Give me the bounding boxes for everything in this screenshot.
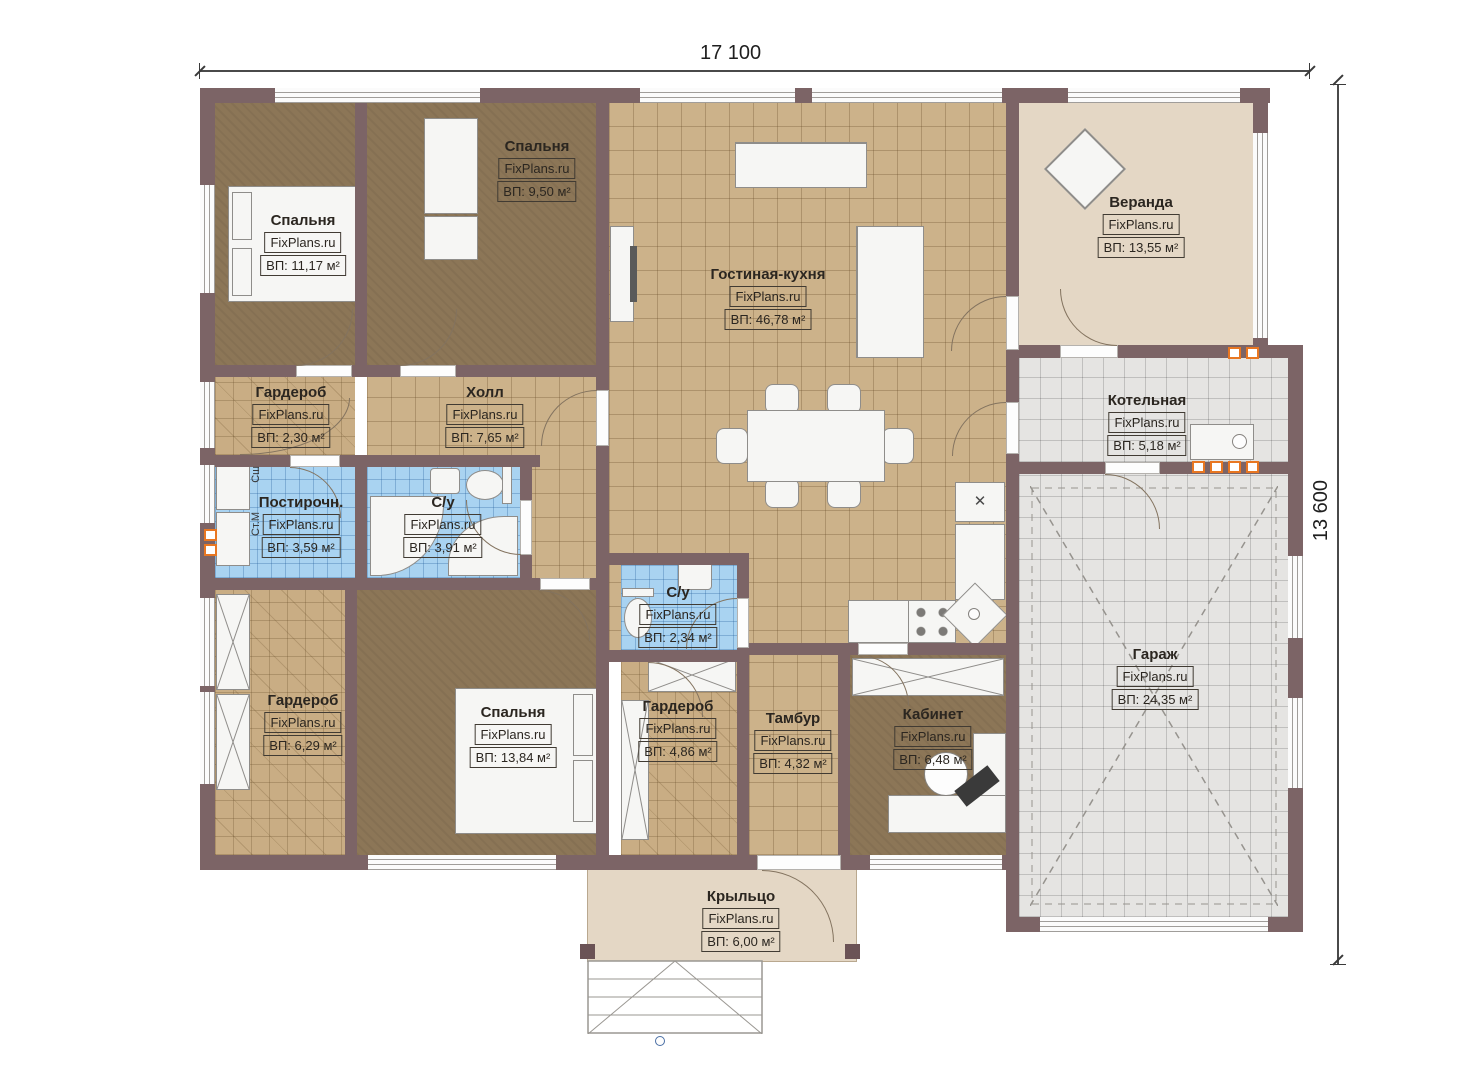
- pillow: [573, 760, 593, 822]
- brand-box: FixPlans.ru: [729, 286, 806, 307]
- room-name: С/у: [666, 584, 689, 601]
- area-box: ВП: 4,32 м²: [753, 753, 832, 774]
- brand-box: FixPlans.ru: [446, 404, 523, 425]
- dim-width-label: 17 100: [700, 42, 761, 65]
- label-bedroom-2: Спальня FixPlans.ru ВП: 9,50 м²: [497, 138, 576, 202]
- toilet-tank: [502, 466, 512, 504]
- area-box: ВП: 11,17 м²: [260, 255, 346, 276]
- wall: [609, 650, 749, 662]
- wardrobe-cabinet: [216, 594, 250, 690]
- kitchen-counter: [848, 600, 910, 643]
- brand-box: FixPlans.ru: [639, 718, 716, 739]
- label-bedroom-3: Спальня FixPlans.ru ВП: 13,84 м²: [470, 704, 557, 768]
- room-name: Гардероб: [256, 384, 327, 401]
- vent-marker: [1228, 347, 1241, 359]
- room-name: Крыльцо: [707, 888, 775, 905]
- door-leaf: [1006, 402, 1019, 454]
- door-leaf: [520, 500, 532, 555]
- porch-post: [845, 944, 860, 959]
- brand-box: FixPlans.ru: [894, 726, 971, 747]
- label-office: Кабинет FixPlans.ru ВП: 6,48 м²: [893, 706, 972, 770]
- sink-drain: [968, 608, 980, 620]
- vent-marker: [1210, 461, 1223, 473]
- window: [368, 855, 556, 870]
- pillow: [232, 248, 252, 296]
- label-wardrobe-2: Гардероб FixPlans.ru ВП: 6,29 м²: [263, 692, 342, 756]
- washing-machine: [216, 512, 250, 566]
- area-box: ВП: 24,35 м²: [1112, 689, 1199, 710]
- wardrobe-cabinet: [216, 694, 250, 790]
- brand-box: FixPlans.ru: [404, 514, 481, 535]
- dim-width-line: [200, 70, 1310, 72]
- area-box: ВП: 4,86 м²: [638, 741, 717, 762]
- room-name: Веранда: [1109, 194, 1173, 211]
- brand-box: FixPlans.ru: [264, 232, 341, 253]
- brand-box: FixPlans.ru: [754, 730, 831, 751]
- vent-marker: [1192, 461, 1205, 473]
- pillow: [232, 192, 252, 240]
- window: [812, 88, 1002, 103]
- door-leaf: [596, 390, 609, 446]
- window: [275, 88, 480, 103]
- wall: [609, 553, 749, 565]
- room-name: Спальня: [505, 138, 570, 155]
- brand-box: FixPlans.ru: [474, 724, 551, 745]
- area-box: ВП: 13,84 м²: [470, 747, 557, 768]
- room-name: Гостиная-кухня: [711, 266, 826, 283]
- room-name: Гардероб: [268, 692, 339, 709]
- room-name: Гараж: [1133, 646, 1178, 663]
- closet: [424, 216, 478, 260]
- area-box: ВП: 6,48 м²: [893, 749, 972, 770]
- door-leaf: [1006, 296, 1019, 350]
- boiler-gauge: [1232, 434, 1247, 449]
- floor-plan: 17 100 13 600 ✕: [0, 0, 1474, 1080]
- desk: [888, 795, 1006, 833]
- window: [640, 88, 795, 103]
- window: [1288, 556, 1303, 638]
- vent-marker: [1246, 461, 1259, 473]
- door-leaf: [290, 455, 340, 467]
- label-laundry: Постирочн. FixPlans.ru ВП: 3,59 м²: [259, 494, 344, 558]
- room-name: Холл: [466, 384, 504, 401]
- brand-box: FixPlans.ru: [252, 404, 329, 425]
- porch-post: [580, 944, 595, 959]
- wall: [1006, 88, 1019, 932]
- wall: [345, 590, 357, 855]
- sofa: [735, 142, 867, 188]
- window: [200, 598, 215, 686]
- brand-box: FixPlans.ru: [262, 514, 339, 535]
- label-bedroom-1: Спальня FixPlans.ru ВП: 11,17 м²: [260, 212, 346, 276]
- wall: [596, 103, 609, 855]
- room-name: Спальня: [271, 212, 336, 229]
- brand-box: FixPlans.ru: [498, 158, 575, 179]
- window: [200, 382, 215, 448]
- area-box: ВП: 6,29 м²: [263, 735, 342, 756]
- room-name: Котельная: [1108, 392, 1187, 409]
- label-bath-1: С/у FixPlans.ru ВП: 3,91 м²: [403, 494, 482, 558]
- window: [200, 185, 215, 293]
- label-wardrobe-3: Гардероб FixPlans.ru ВП: 4,86 м²: [638, 698, 717, 762]
- label-wardrobe-1: Гардероб FixPlans.ru ВП: 2,30 м²: [251, 384, 330, 448]
- label-veranda: Веранда FixPlans.ru ВП: 13,55 м²: [1098, 194, 1185, 258]
- vent-marker: [204, 544, 217, 556]
- dim-height-label: 13 600: [1310, 480, 1333, 541]
- brand-box: FixPlans.ru: [1108, 412, 1185, 433]
- porch-post-marker: [655, 1036, 665, 1046]
- wall: [355, 467, 367, 590]
- sink: [430, 468, 460, 494]
- door-leaf: [540, 578, 590, 590]
- area-box: ВП: 7,65 м²: [445, 427, 524, 448]
- area-box: ВП: 2,30 м²: [251, 427, 330, 448]
- room-name: Кабинет: [903, 706, 964, 723]
- label-boiler: Котельная FixPlans.ru ВП: 5,18 м²: [1107, 392, 1186, 456]
- brand-box: FixPlans.ru: [702, 908, 779, 929]
- room-name: С/у: [431, 494, 454, 511]
- window: [1288, 698, 1303, 788]
- vent-marker: [1246, 347, 1259, 359]
- brand-box: FixPlans.ru: [1102, 214, 1179, 235]
- room-name: Гардероб: [643, 698, 714, 715]
- window: [200, 692, 215, 784]
- brand-box: FixPlans.ru: [639, 604, 716, 625]
- pillow: [573, 694, 593, 756]
- brand-box: FixPlans.ru: [264, 712, 341, 733]
- area-box: ВП: 2,34 м²: [638, 627, 717, 648]
- label-hall: Холл FixPlans.ru ВП: 7,65 м²: [445, 384, 524, 448]
- tv: [630, 246, 637, 302]
- window: [870, 855, 1002, 870]
- room-name: Спальня: [481, 704, 546, 721]
- room-name: Тамбур: [766, 710, 820, 727]
- door-leaf: [296, 365, 352, 377]
- garage-door: [1040, 917, 1268, 932]
- door-leaf: [858, 643, 908, 655]
- room-name: Постирочн.: [259, 494, 344, 511]
- window: [200, 465, 215, 523]
- area-box: ВП: 5,18 м²: [1107, 435, 1186, 456]
- wall: [1288, 358, 1303, 932]
- chair: [765, 478, 799, 508]
- window: [1068, 88, 1240, 103]
- door-leaf: [1105, 462, 1160, 474]
- dining-table: [747, 410, 885, 482]
- vent-marker: [204, 529, 217, 541]
- window: [1253, 133, 1268, 338]
- brand-box: FixPlans.ru: [1116, 666, 1193, 687]
- door-leaf: [400, 365, 456, 377]
- dim-height-line: [1337, 85, 1339, 965]
- area-box: ВП: 3,59 м²: [261, 537, 340, 558]
- chair: [882, 428, 914, 464]
- vent-marker: [1228, 461, 1241, 473]
- label-living-kitchen: Гостиная-кухня FixPlans.ru ВП: 46,78 м²: [711, 266, 826, 330]
- area-box: ВП: 3,91 м²: [403, 537, 482, 558]
- label-garage: Гараж FixPlans.ru ВП: 24,35 м²: [1112, 646, 1199, 710]
- area-box: ВП: 46,78 м²: [725, 309, 812, 330]
- door-leaf: [757, 855, 841, 870]
- label-porch: Крыльцо FixPlans.ru ВП: 6,00 м²: [701, 888, 780, 952]
- fridge: ✕: [955, 482, 1005, 522]
- label-vestibule: Тамбур FixPlans.ru ВП: 4,32 м²: [753, 710, 832, 774]
- porch-steps: [587, 960, 763, 1034]
- door-leaf: [737, 598, 749, 648]
- chair: [716, 428, 748, 464]
- wall: [355, 103, 367, 377]
- washing-machine: [216, 462, 250, 510]
- fridge-cross-icon: ✕: [974, 493, 987, 510]
- area-box: ВП: 6,00 м²: [701, 931, 780, 952]
- wall: [838, 655, 850, 855]
- closet: [424, 118, 478, 214]
- area-box: ВП: 13,55 м²: [1098, 237, 1185, 258]
- dryer-label: Сш: [250, 466, 262, 483]
- sofa: [856, 226, 924, 358]
- area-box: ВП: 9,50 м²: [497, 181, 576, 202]
- label-bath-2: С/у FixPlans.ru ВП: 2,34 м²: [638, 584, 717, 648]
- door-leaf: [1060, 345, 1118, 358]
- chair: [827, 478, 861, 508]
